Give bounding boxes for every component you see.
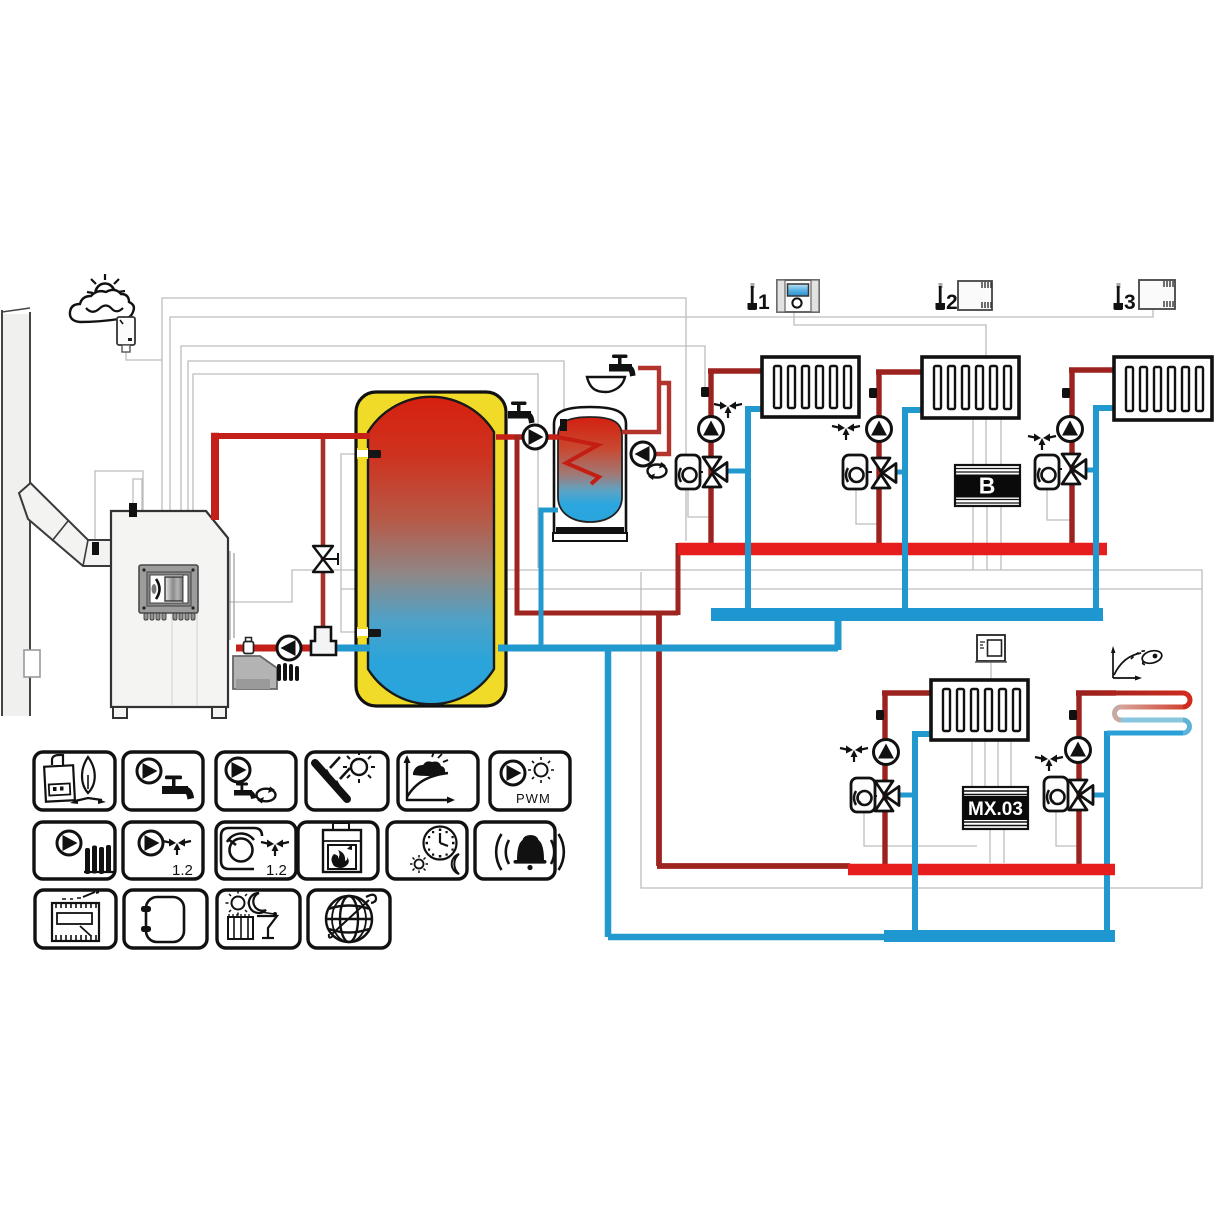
svg-text:3: 3 — [1124, 291, 1136, 314]
svg-text:2: 2 — [946, 291, 958, 314]
svg-text:B: B — [979, 473, 996, 499]
svg-text:1: 1 — [758, 291, 770, 314]
svg-text:PWM: PWM — [516, 791, 551, 806]
svg-text:1.2: 1.2 — [172, 862, 193, 879]
svg-text:1.2: 1.2 — [266, 862, 287, 879]
svg-text:MX.03: MX.03 — [968, 799, 1023, 820]
